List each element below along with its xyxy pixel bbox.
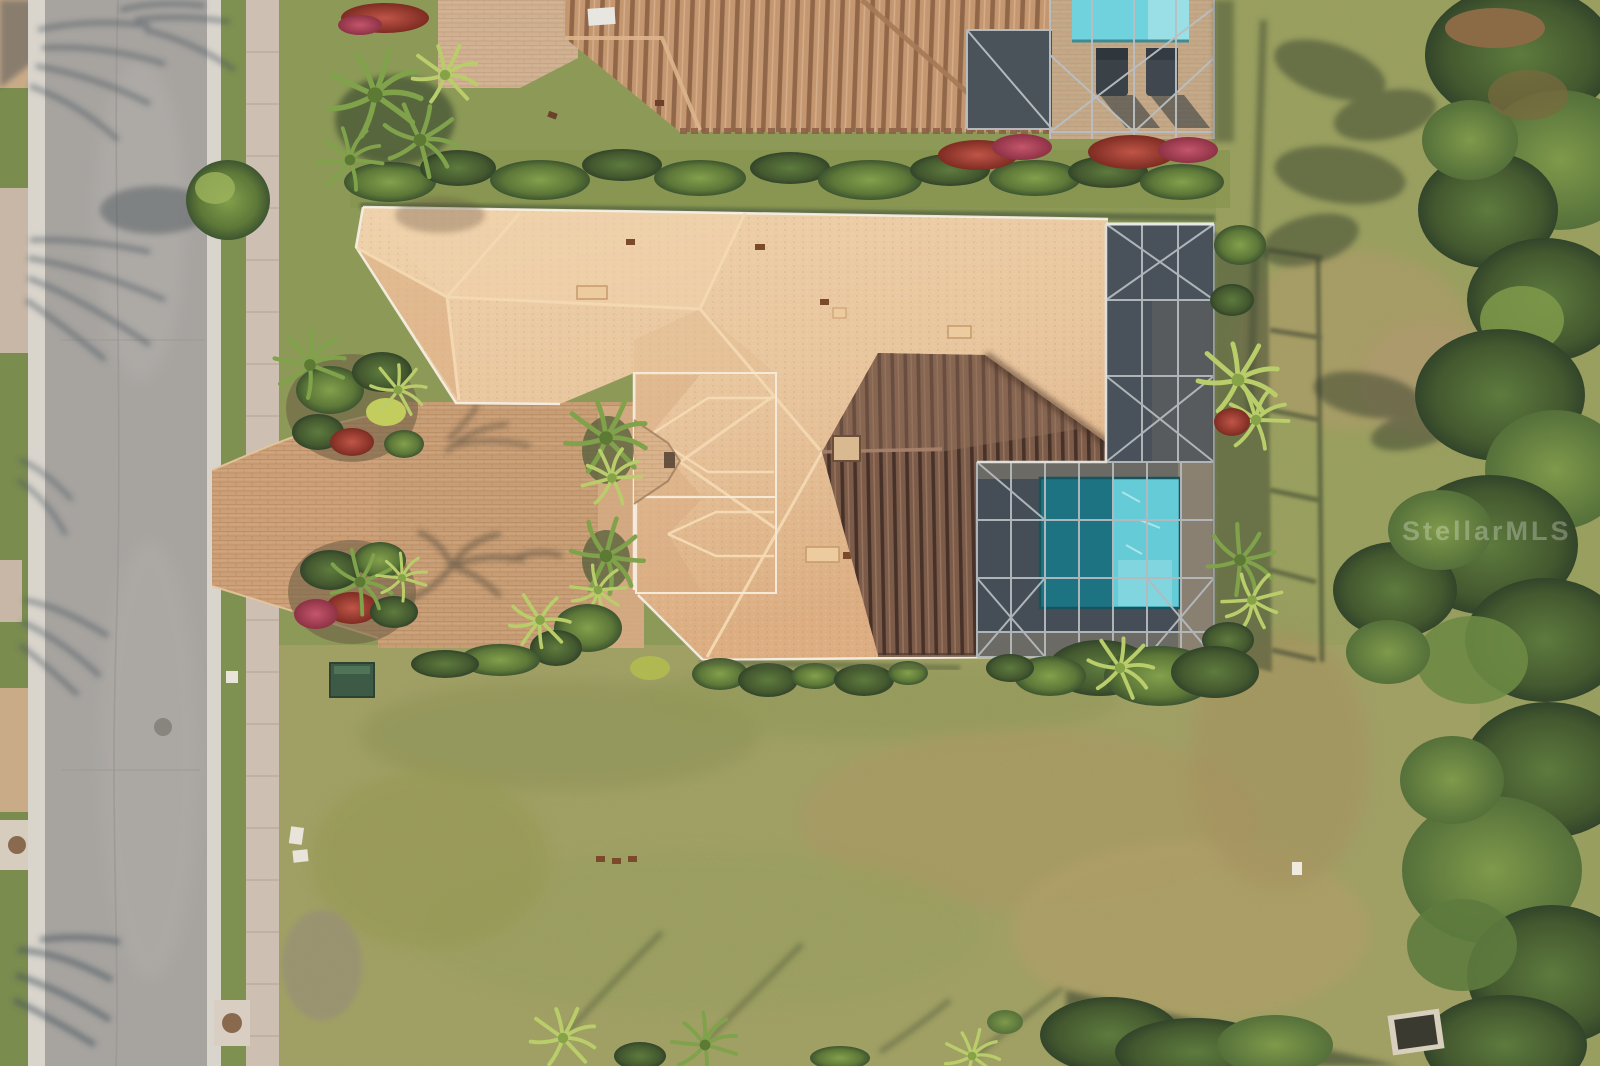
west-curb: [28, 0, 45, 1066]
neighbor-roof-vent: [587, 7, 615, 26]
red-plant: [1214, 408, 1250, 436]
dead-branches: [1445, 8, 1545, 48]
skylight: [833, 436, 860, 461]
utility-pad: [1387, 1009, 1444, 1056]
utility-box: [330, 663, 374, 697]
utility-cover: [8, 836, 26, 854]
aerial-scene: StellarMLS: [0, 0, 1600, 1066]
aerial-photo: StellarMLS: [0, 0, 1600, 1066]
road-surface: [45, 0, 208, 1066]
front-door-shadow: [664, 452, 675, 468]
manhole-cover: [154, 718, 172, 736]
watermark: StellarMLS: [1402, 516, 1572, 546]
sidewalk-utility-cover: [222, 1013, 242, 1033]
swimming-pool: [1040, 478, 1180, 608]
